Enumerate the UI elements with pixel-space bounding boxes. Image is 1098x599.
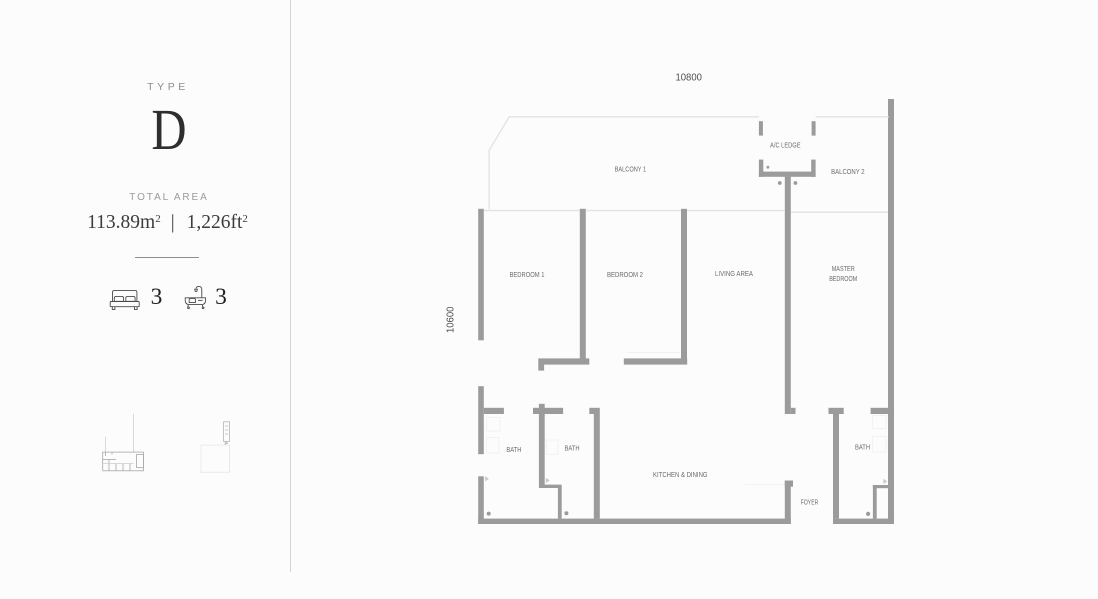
svg-text:BEDROOM 1: BEDROOM 1 xyxy=(510,272,545,279)
svg-text:KITCHEN & DINING: KITCHEN & DINING xyxy=(653,472,708,479)
svg-text:BATH: BATH xyxy=(565,446,580,453)
svg-text:10800: 10800 xyxy=(675,73,702,84)
svg-text:BEDROOM 2: BEDROOM 2 xyxy=(607,272,643,279)
svg-text:BATH: BATH xyxy=(506,447,521,454)
svg-text:BALCONY 1: BALCONY 1 xyxy=(615,167,647,174)
svg-text:A/C LEDGE: A/C LEDGE xyxy=(770,142,801,149)
svg-text:BATH: BATH xyxy=(855,444,870,451)
svg-text:BALCONY 2: BALCONY 2 xyxy=(831,169,865,176)
svg-text:MASTER: MASTER xyxy=(832,266,855,273)
svg-text:10600: 10600 xyxy=(445,306,456,333)
svg-text:LIVING AREA: LIVING AREA xyxy=(715,271,753,278)
svg-text:BEDROOM: BEDROOM xyxy=(829,276,857,283)
svg-text:FOYER: FOYER xyxy=(801,499,819,506)
